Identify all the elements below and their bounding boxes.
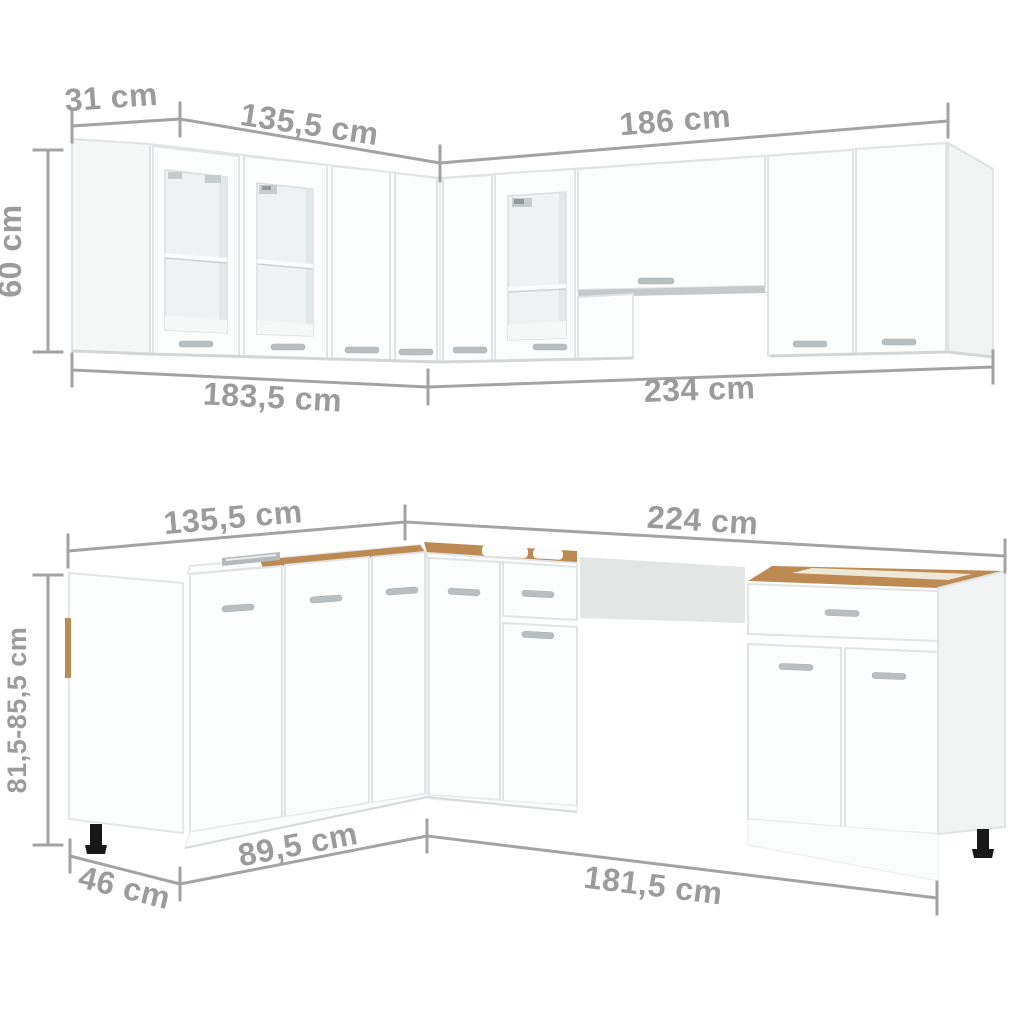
- door-handle: [872, 672, 906, 679]
- door-handle: [271, 344, 305, 350]
- cabinet-foot: [85, 824, 107, 854]
- door-handle: [779, 663, 813, 670]
- door-handle: [453, 347, 487, 353]
- door-handle: [448, 588, 480, 596]
- dimension-label-top-right-width: 186 cm: [618, 98, 732, 143]
- dimension-label-bottom-right-width: 234 cm: [643, 369, 756, 409]
- lower-cabinet-diagram: [65, 542, 1005, 881]
- exposed-wood-edge: [65, 618, 71, 678]
- dimension-line-height-range: [34, 575, 62, 845]
- glass-pane-1: [165, 170, 227, 333]
- door-handle: [399, 349, 433, 355]
- right-cabinet-door-left: [748, 644, 841, 827]
- door-handle: [533, 344, 567, 350]
- dimension-line-height-60: [34, 150, 62, 352]
- door-handle: [179, 341, 213, 347]
- cabinet-foot: [972, 829, 994, 858]
- product-dimension-diagram: 60 cm 31 cm 135,5 cm 186 cm 183,5 cm 234…: [0, 0, 1024, 1024]
- hood-cabinet-door: [578, 156, 765, 290]
- door-handle: [793, 341, 827, 347]
- upper-door-4: [395, 173, 437, 362]
- lower-left-end-cabinet: [69, 573, 183, 833]
- door-handle: [638, 278, 674, 284]
- upper-door-5: [768, 150, 853, 356]
- dimension-label-height-range: 81,5-85,5 cm: [2, 627, 32, 794]
- door-handle: [345, 347, 379, 353]
- upper-right-side-panel: [948, 143, 993, 357]
- sink-unit-door: [503, 623, 577, 806]
- dimension-label-top-left-width: 135,5 cm: [238, 96, 381, 152]
- hood-cabinet-left-leg: [578, 294, 633, 360]
- dimension-label-bottom-right-width: 181,5 cm: [582, 859, 725, 912]
- door-handle: [825, 609, 859, 616]
- door-handle: [882, 339, 916, 345]
- sink-bowl: [533, 548, 564, 560]
- right-cabinet-side-panel: [938, 571, 1005, 834]
- door-handle: [522, 631, 554, 639]
- dimension-label-end-depth: 46 cm: [75, 859, 174, 916]
- appliance-gap-back-panel: [580, 557, 745, 623]
- door-handle: [522, 590, 554, 598]
- upper-corner-door: [443, 175, 492, 362]
- upper-door-6: [856, 143, 946, 354]
- dimension-label-depth-31: 31 cm: [63, 76, 159, 118]
- glass-pane-2: [257, 183, 313, 336]
- diagram-canvas: 60 cm 31 cm 135,5 cm 186 cm 183,5 cm 234…: [0, 0, 1024, 1024]
- glass-pane-3: [508, 192, 566, 340]
- upper-door-3: [332, 166, 390, 360]
- dimension-label-top-right-width: 224 cm: [646, 499, 760, 542]
- upper-cabinet-diagram: [72, 139, 993, 362]
- dimension-label-height-60: 60 cm: [0, 204, 28, 297]
- upper-left-side-panel: [72, 139, 150, 354]
- dimension-label-bottom-left-width: 183,5 cm: [202, 375, 343, 418]
